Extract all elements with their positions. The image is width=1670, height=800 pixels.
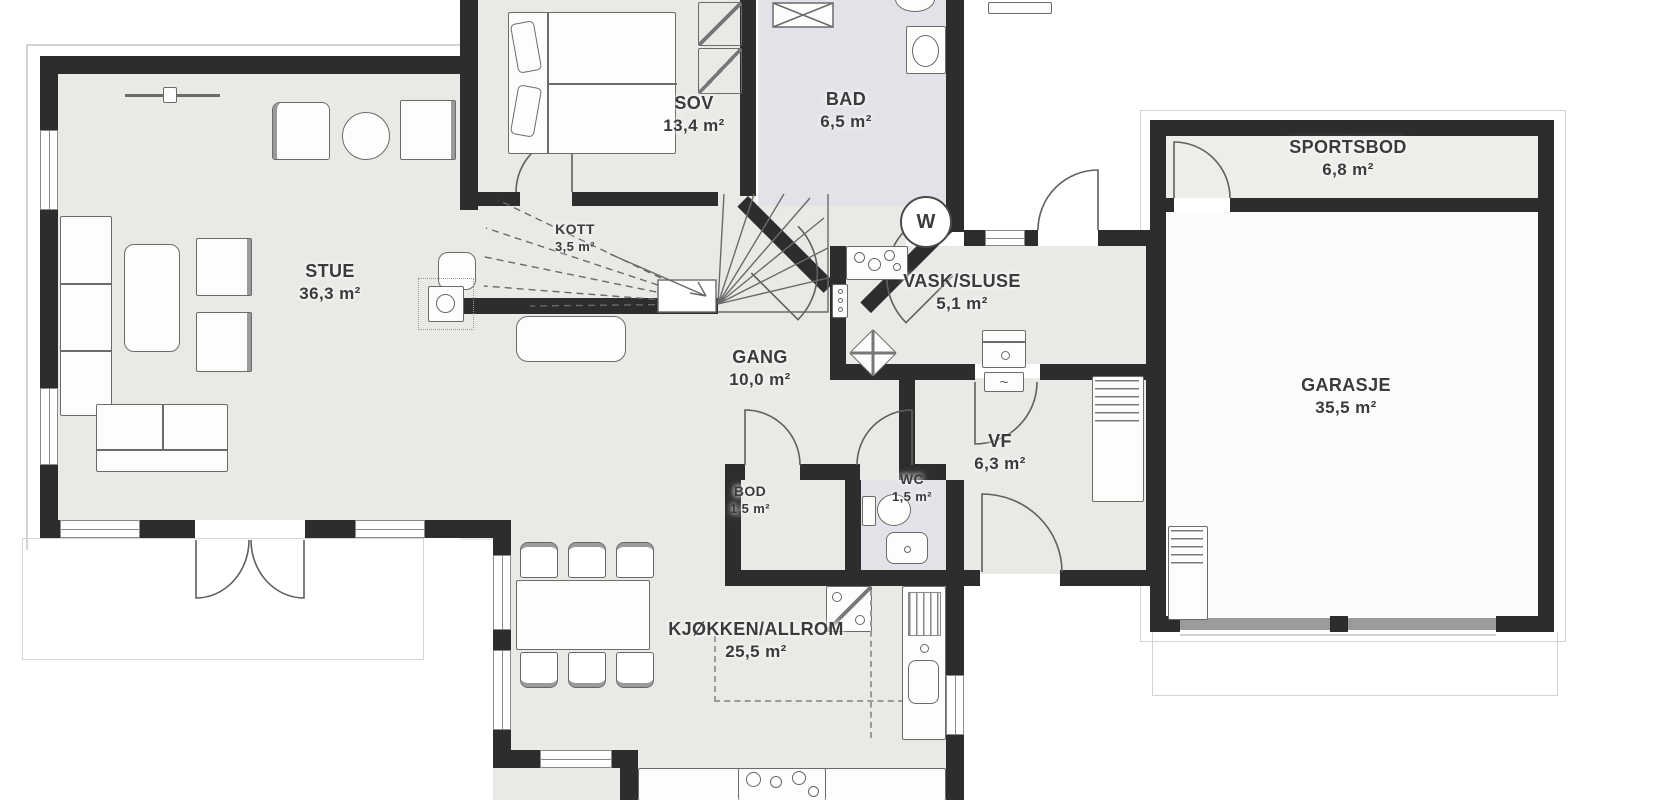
room-label-gang: GANG 10,0 m² (729, 346, 790, 390)
laundry-sink (893, 263, 901, 271)
room-label-wc: WC 1,5 m² (892, 471, 932, 505)
room-area: 36,3 m² (299, 283, 360, 304)
wall (740, 0, 756, 196)
wall (493, 538, 511, 555)
window (493, 555, 511, 630)
upper-cabinet-line (714, 700, 904, 702)
bod-door-arc (745, 410, 800, 465)
room-area: 6,3 m² (974, 453, 1026, 474)
room-name: BOD (730, 483, 770, 501)
terrace-door-arc (251, 540, 304, 598)
wall (964, 570, 980, 586)
wall (1060, 570, 1146, 586)
dining-chair (520, 652, 558, 688)
room-label-stue: STUE 36,3 m² (299, 260, 360, 304)
wall (946, 0, 964, 232)
toilet-tank (862, 496, 876, 526)
porch-bench (988, 2, 1052, 14)
wall (800, 464, 860, 480)
wall (140, 520, 195, 538)
eaves-outline (26, 44, 490, 46)
wall (40, 56, 476, 74)
room-area: 3,5 m² (555, 239, 595, 255)
vf-wardrobe (1092, 376, 1144, 502)
upper-cabinet-line (870, 590, 872, 738)
wc-door-arc (857, 410, 912, 465)
dining-chair (568, 542, 606, 578)
window (493, 650, 511, 730)
window (946, 675, 964, 735)
laundry-sink (884, 250, 895, 261)
room-label-garasje: GARASJE 35,5 m² (1301, 374, 1391, 418)
room-label-bod: BOD 1,5 m² (730, 483, 770, 517)
armchair (400, 100, 456, 160)
wall (1496, 616, 1554, 632)
wall (1150, 120, 1166, 632)
wall (1025, 230, 1038, 246)
room-name: VF (974, 430, 1026, 453)
window (40, 130, 58, 210)
room-label-vask: VASK/SLUSE 5,1 m² (903, 270, 1021, 314)
wall (460, 0, 478, 210)
room-area: 6,5 m² (820, 111, 872, 132)
armchair (272, 102, 330, 160)
washing-machine-letter: W (917, 211, 936, 234)
armchair (196, 312, 252, 372)
wall (40, 520, 60, 538)
stove-burner (746, 772, 761, 787)
sofa (60, 216, 112, 416)
wall (1166, 198, 1174, 212)
dining-table (516, 580, 650, 650)
round-table (342, 112, 390, 160)
wardrobe (698, 2, 742, 46)
washer (982, 330, 1026, 368)
wall-tv-bracket (163, 87, 177, 103)
bathroom-sink (906, 26, 946, 74)
wall (1538, 120, 1554, 632)
kitchen-sink (908, 660, 939, 704)
room-area: 6,8 m² (1289, 159, 1407, 180)
terrace-door-arc (196, 540, 249, 598)
wall (425, 520, 511, 538)
room-name: BAD (820, 88, 872, 111)
vent-symbol: ~ (984, 372, 1024, 392)
room-area: 5,1 m² (903, 293, 1021, 314)
stove-burner (770, 776, 782, 788)
sofa (96, 404, 228, 472)
driveway-outline (1152, 632, 1558, 696)
floor-plan: W ~ (0, 0, 1670, 800)
wall (1230, 198, 1538, 212)
washing-machine-symbol: W (900, 196, 952, 248)
staircase (460, 192, 832, 318)
wc-sink (886, 532, 928, 564)
wall (725, 570, 946, 586)
room-label-kott: KOTT 3,5 m² (555, 221, 595, 255)
window (540, 750, 612, 768)
garage-shelf (1168, 526, 1208, 620)
eaves-outline (26, 44, 28, 550)
armchair (196, 238, 252, 296)
shower (772, 2, 834, 28)
kitchen-faucet (920, 644, 929, 653)
window (60, 520, 140, 538)
room-name: STUE (299, 260, 360, 283)
wall (620, 750, 638, 800)
dining-chair (616, 652, 654, 688)
room-name: KJØKKEN/ALLROM (668, 618, 844, 641)
room-area: 25,5 m² (668, 641, 844, 662)
wall (946, 735, 964, 800)
wardrobe (698, 48, 742, 94)
garage-door (1348, 618, 1496, 630)
wall (1330, 616, 1348, 632)
room-name: SOV (663, 92, 724, 115)
room-name: KOTT (555, 221, 595, 239)
room-label-vf: VF 6,3 m² (974, 430, 1026, 474)
stove-burner (792, 771, 806, 785)
garage-door-track (1180, 634, 1496, 636)
room-name: GANG (729, 346, 790, 369)
stove-burner (808, 786, 819, 797)
wood-stove (428, 286, 464, 322)
laundry-sink (868, 258, 881, 271)
dining-chair (616, 542, 654, 578)
wall (493, 750, 540, 768)
window (355, 520, 425, 538)
wall-panel (832, 284, 848, 318)
room-name: VASK/SLUSE (903, 270, 1021, 293)
room-name: GARASJE (1301, 374, 1391, 397)
room-label-kjokken: KJØKKEN/ALLROM 25,5 m² (668, 618, 844, 662)
window (985, 230, 1025, 246)
wall (1150, 120, 1554, 136)
wall (305, 520, 355, 538)
laundry-sink (854, 252, 865, 263)
wall (40, 56, 58, 130)
room-label-sportsbod: SPORTSBOD 6,8 m² (1289, 136, 1407, 180)
room-label-sov: SOV 13,4 m² (663, 92, 724, 136)
room-label-bad: BAD 6,5 m² (820, 88, 872, 132)
wall (40, 210, 58, 388)
wall (493, 630, 511, 650)
room-area: 35,5 m² (1301, 397, 1391, 418)
dish-rack (908, 592, 941, 636)
wall (946, 480, 964, 675)
room-name: WC (892, 471, 932, 489)
dining-chair (568, 652, 606, 688)
wall (964, 230, 985, 246)
room-area: 13,4 m² (663, 115, 724, 136)
room-area: 1,5 m² (730, 501, 770, 517)
side-entrance-door-arc (1038, 170, 1098, 230)
entry-door-arc (982, 494, 1062, 572)
room-area: 1,5 m² (892, 489, 932, 505)
coffee-table (124, 244, 180, 352)
tv-bench (516, 316, 626, 362)
room-name: SPORTSBOD (1289, 136, 1407, 159)
window (40, 388, 58, 465)
sportsbod-door-arc (1174, 142, 1230, 198)
dining-chair (520, 542, 558, 578)
room-area: 10,0 m² (729, 369, 790, 390)
